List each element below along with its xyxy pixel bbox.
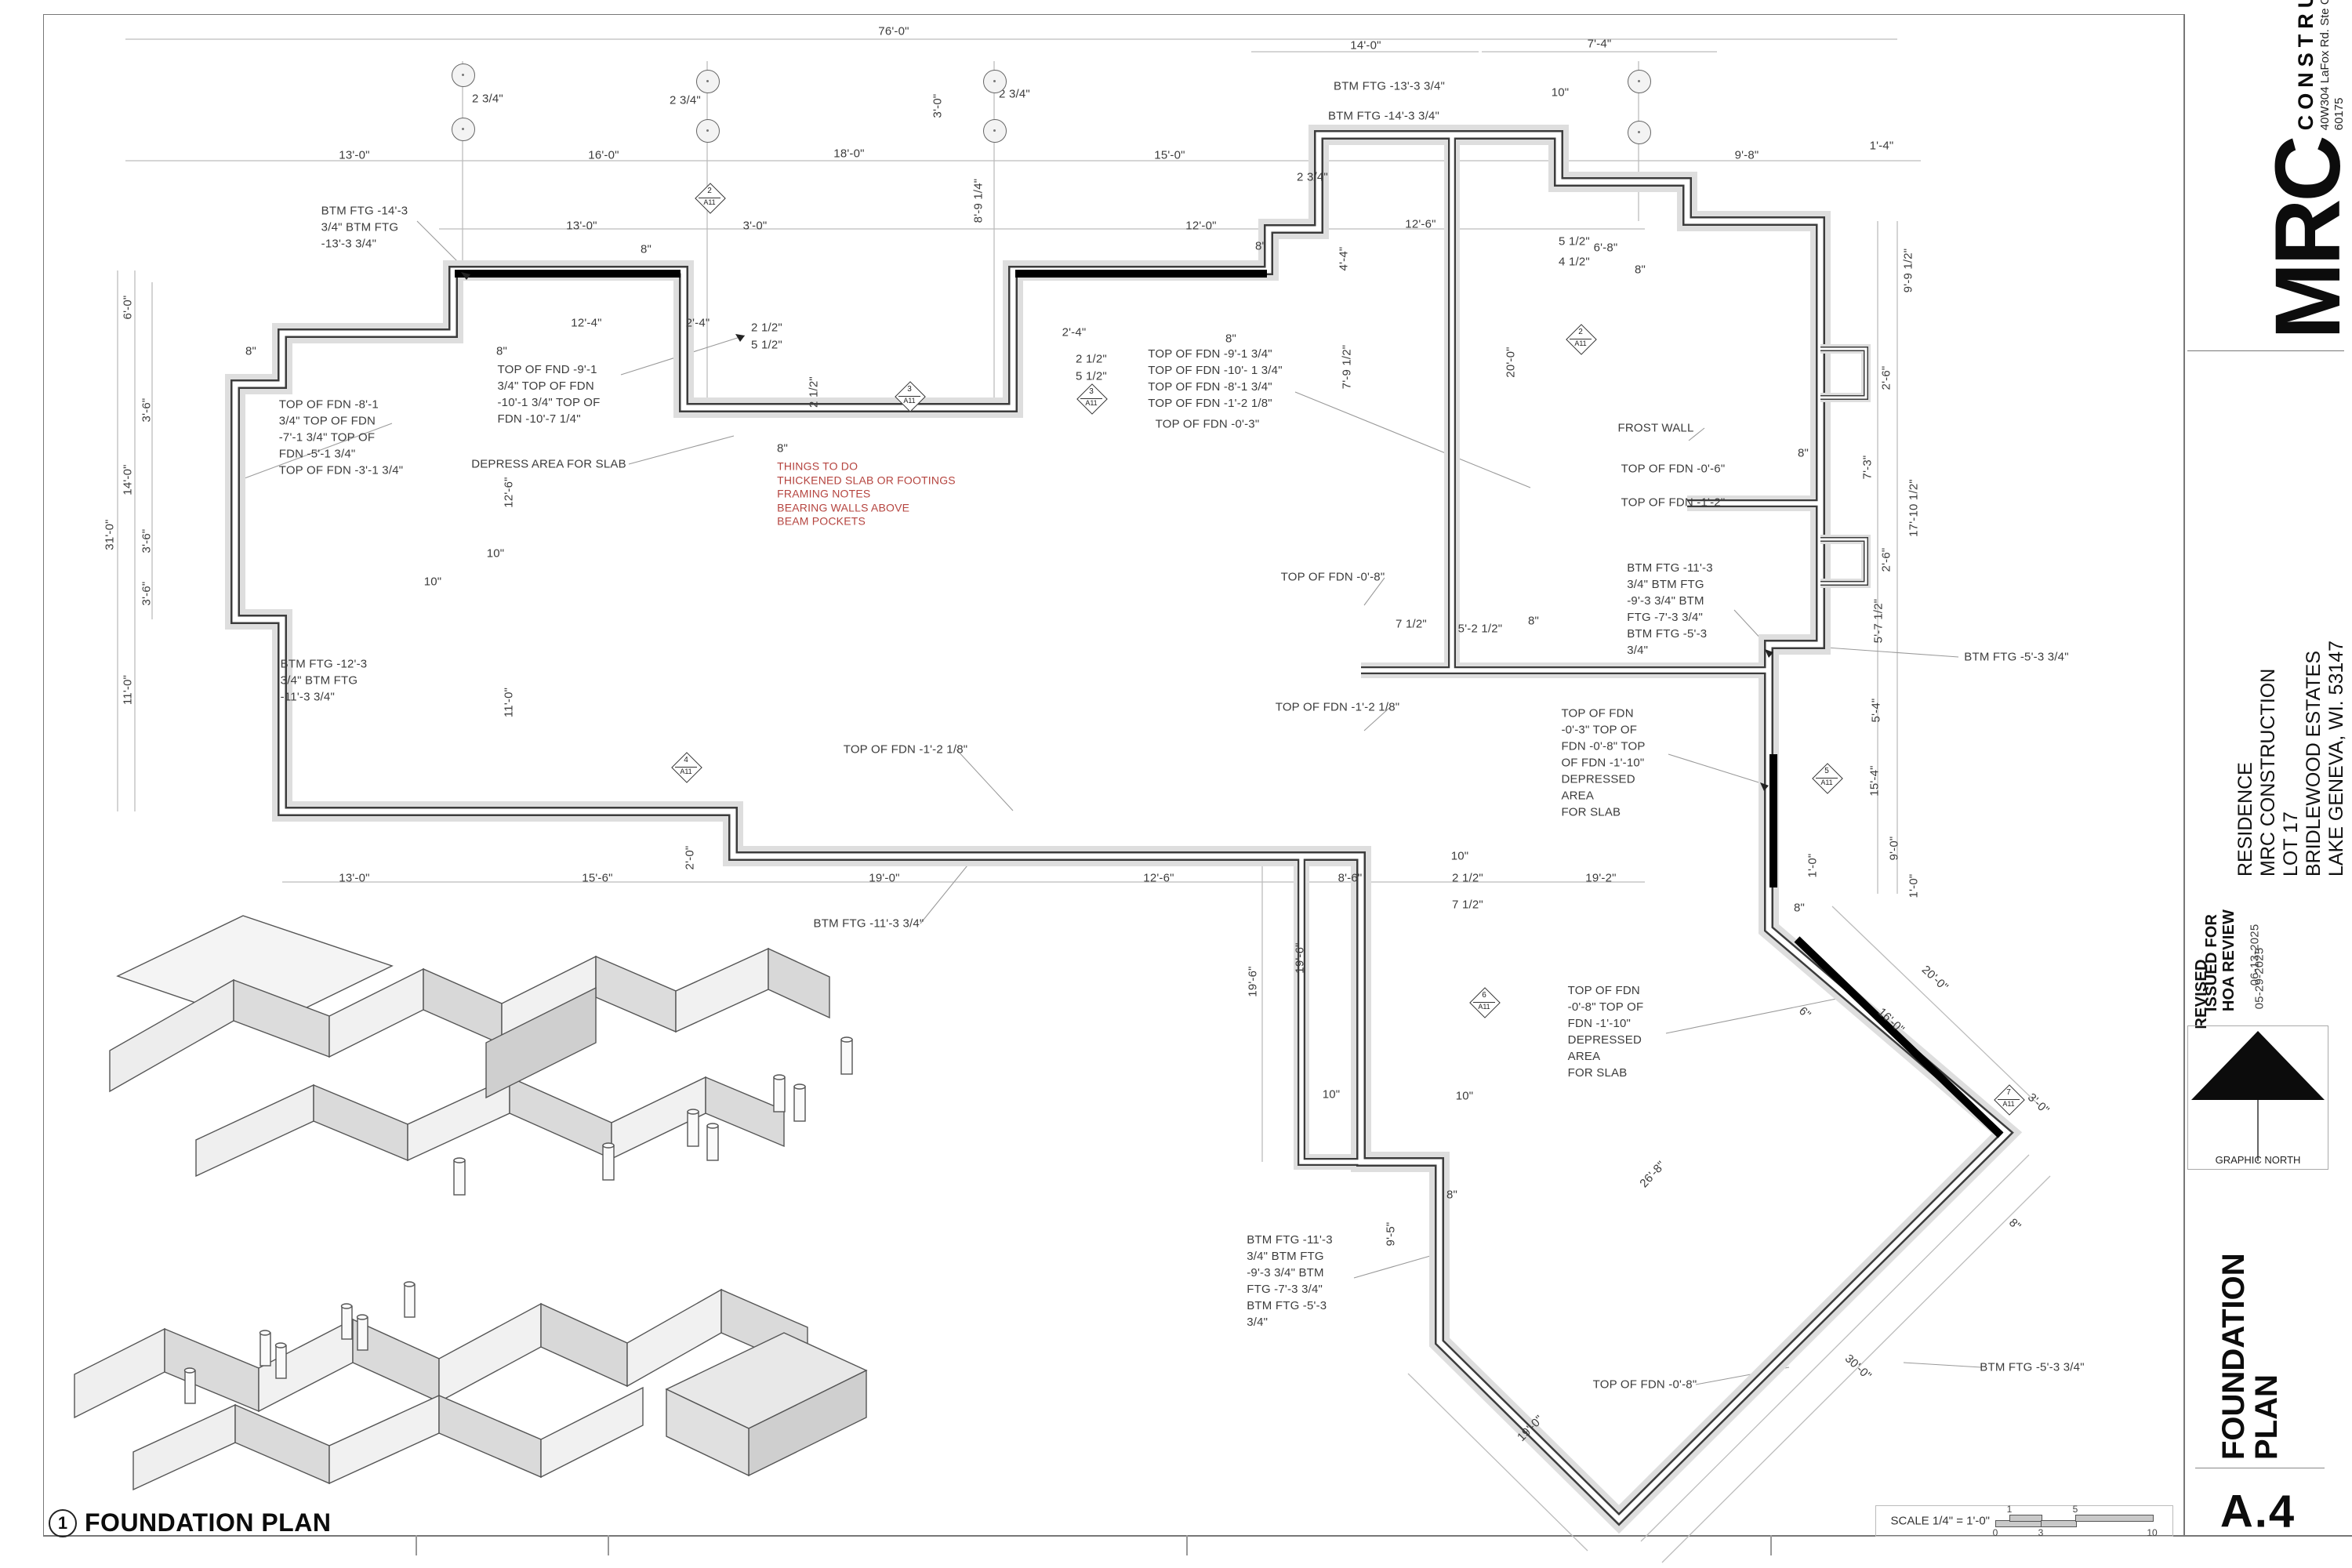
dim-label: BTM FTG -5'-3 3/4": [1964, 649, 2068, 666]
dim-label: 15'-4": [1867, 765, 1883, 796]
dim-label: 76'-0": [878, 24, 909, 40]
dim-label: TOP OF FDN -1'-2 1/8": [844, 742, 968, 758]
dim-label: 1'-0": [1906, 874, 1922, 898]
dim-label: 18'-0": [833, 146, 864, 162]
dim-label: 13'-0": [339, 870, 369, 887]
section-marker-sheet: A11: [1473, 1002, 1495, 1011]
scalebar-segment: [2009, 1515, 2042, 1522]
drawing-sheet: 76'-0"14'-0"7'-4"BTM FTG -13'-3 3/4"BTM …: [0, 0, 2352, 1568]
north-arrow-icon: [2188, 1026, 2328, 1169]
dim-label: TOP OF FND -9'-1 3/4" TOP OF FDN -10'-1 …: [497, 361, 600, 427]
title-divider: [2195, 1468, 2325, 1468]
dim-label: 4 1/2": [1559, 254, 1590, 270]
dim-label: 16'-0": [588, 147, 619, 164]
dim-label: 7'-9 1/2": [1339, 345, 1356, 390]
dim-label: DEPRESS AREA FOR SLAB: [471, 456, 626, 473]
dim-label: 3'-0": [2024, 1090, 2053, 1118]
dim-label: TOP OF FDN -8'-1 3/4" TOP OF FDN -7'-1 3…: [279, 397, 404, 479]
dim-label: 19'-6": [1245, 966, 1261, 996]
dim-label: 8": [641, 241, 652, 258]
section-marker-sheet: A11: [1816, 778, 1838, 786]
project-line: LAKE GENEVA, WI. 53147: [2325, 516, 2348, 877]
annotation-layer: 76'-0"14'-0"7'-4"BTM FTG -13'-3 3/4"BTM …: [0, 0, 2352, 1568]
dim-label: 6'-8": [1594, 240, 1618, 256]
section-marker-sheet: A11: [1080, 398, 1102, 407]
dim-label: 8'-6": [1338, 870, 1363, 887]
project-line: BRIDLEWOOD ESTATES: [2303, 516, 2325, 877]
dim-label: 2'-6": [1878, 548, 1895, 572]
dim-label: BTM FTG -14'-3 3/4": [1328, 108, 1439, 125]
dim-label: 10": [424, 574, 442, 590]
dim-label: TOP OF FDN -0'-8": [1593, 1377, 1697, 1393]
dim-label: 9'-9 1/2": [1900, 249, 1917, 293]
dim-label: 1'-4": [1870, 138, 1894, 154]
logo-subtitle: CONSTRUCTION: [2295, 0, 2318, 130]
section-marker-sheet: A11: [699, 198, 720, 206]
dim-label: 10": [1552, 85, 1570, 101]
dim-label: 2 3/4": [1297, 169, 1328, 186]
dim-label: 8": [1528, 613, 1539, 630]
dim-label: 12'-6": [1143, 870, 1174, 887]
dim-label: 10": [1456, 1088, 1474, 1105]
dim-label: 2'-4": [1062, 325, 1087, 341]
dim-label: 2 3/4": [472, 91, 503, 107]
sheet-title: FOUNDATION PLAN: [2217, 1225, 2296, 1460]
dim-label: 8": [1798, 445, 1809, 462]
section-marker-number: 2: [1570, 328, 1592, 336]
grid-bubble: [983, 70, 1007, 93]
dim-label: 13'-0": [566, 218, 597, 234]
dim-label: 8": [1225, 331, 1236, 347]
dim-label: 6": [1795, 1004, 1815, 1023]
section-marker-sheet: A11: [1998, 1099, 2020, 1108]
dim-label: 2'-4": [686, 315, 710, 332]
dim-label: 8": [1446, 1187, 1457, 1203]
section-marker-number: 4: [675, 756, 697, 764]
dim-label: 8": [496, 343, 507, 360]
dim-label: 19'-2": [1585, 870, 1616, 887]
section-marker-sheet: A11: [1570, 339, 1592, 347]
dim-label: REVISED: [2193, 959, 2210, 1029]
dim-label: 8": [1794, 900, 1805, 916]
north-label: GRAPHIC NORTH: [2188, 1154, 2328, 1166]
dim-label: BTM FTG -11'-3 3/4" BTM FTG -9'-3 3/4" B…: [1247, 1232, 1333, 1330]
dim-label: 9'-0": [1886, 837, 1903, 861]
dim-label: 12'-0": [1185, 218, 1216, 234]
dim-label: 12'-6": [501, 477, 517, 507]
grid-bubble: [983, 119, 1007, 143]
dim-label: 20'-0": [1503, 347, 1519, 377]
scalebar-segment: [2041, 1520, 2077, 1527]
dim-label: TOP OF FDN -0'-3" TOP OF FDN -0'-8" TOP …: [1561, 706, 1645, 821]
dim-label: 2 1/2": [1076, 351, 1107, 368]
dim-label: 8'-9 1/4": [971, 179, 987, 223]
red-note: THINGS TO DO THICKENED SLAB OR FOOTINGS …: [777, 459, 956, 528]
dim-label: 1'-0": [1805, 854, 1821, 878]
dim-label: 7'-4": [1588, 36, 1612, 53]
dim-label: 15'-6": [582, 870, 612, 887]
dim-label: 19'-0": [1514, 1412, 1548, 1446]
dim-label: 8": [1635, 262, 1646, 278]
dim-label: TOP OF FDN -0'-8": [1281, 569, 1385, 586]
logo-text: MRC: [2270, 138, 2347, 339]
dim-label: 5'-2 1/2": [1458, 621, 1503, 637]
section-marker-number: 5: [1816, 767, 1838, 775]
dim-label: 14'-0": [120, 464, 136, 495]
detail-number-bubble: 1: [49, 1509, 77, 1537]
section-marker-number: 7: [1998, 1088, 2020, 1097]
section-marker-sheet: A11: [898, 396, 920, 405]
grid-bubble: [696, 70, 720, 93]
dim-label: TOP OF FDN -0'-8" TOP OF FDN -1'-10" DEP…: [1568, 982, 1644, 1081]
dim-label: 26'-8": [1636, 1157, 1669, 1191]
dim-label: 17'-10 1/2": [1906, 479, 1922, 537]
sheet: { "title_block": { "logo_text": "MRC", "…: [0, 0, 2352, 1568]
grid-bubble: [696, 119, 720, 143]
project-line: LOT 17: [2280, 516, 2303, 877]
detail-title: FOUNDATION PLAN: [85, 1508, 331, 1537]
dim-label: FROST WALL: [1617, 420, 1693, 437]
dim-label: 19'-0": [869, 870, 899, 887]
dim-label: 11'-0": [501, 688, 517, 717]
dim-label: 5 1/2": [1076, 368, 1107, 385]
dim-label: 2 3/4": [670, 93, 701, 109]
dim-label: 8": [245, 343, 256, 360]
dim-label: 19'-6": [1292, 942, 1308, 973]
grid-bubble: [452, 118, 475, 141]
dim-label: 3'-6": [139, 529, 155, 554]
dim-label: 05-29-2025: [2252, 948, 2268, 1010]
dim-label: BTM FTG -14'-3 3/4" BTM FTG -13'-3 3/4": [321, 203, 408, 252]
dim-label: 4'-4": [1336, 247, 1352, 271]
grid-bubble: [1628, 121, 1651, 144]
dim-label: 3'-0": [930, 94, 946, 118]
dim-label: BTM FTG -12'-3 3/4" BTM FTG -11'-3 3/4": [281, 656, 368, 706]
dim-label: TOP OF FDN -1'-2": [1621, 495, 1726, 511]
dim-label: 13'-0": [339, 147, 369, 164]
dim-label: 10": [1323, 1087, 1341, 1103]
dim-label: 7 1/2": [1452, 897, 1483, 913]
project-line: MRC CONSTRUCTION: [2257, 516, 2280, 877]
dim-label: BTM FTG -5'-3 3/4": [1980, 1359, 2084, 1376]
dim-label: 9'-8": [1735, 147, 1759, 164]
dim-label: 5 1/2": [1559, 234, 1590, 250]
dim-label: 14'-0": [1350, 38, 1381, 54]
section-marker-number: 3: [898, 385, 920, 394]
dim-label: 8": [2005, 1215, 2025, 1235]
project-line: RESIDENCE: [2234, 516, 2257, 877]
section-marker-number: 2: [699, 187, 720, 195]
dim-label: 2 1/2": [751, 320, 782, 336]
dim-label: 2 1/2": [806, 376, 822, 408]
section-marker-number: 3: [1080, 387, 1102, 396]
dim-label: 8": [777, 441, 788, 457]
dim-label: 30'-0": [1841, 1351, 1875, 1384]
dim-label: 6'-0": [120, 296, 136, 320]
dim-label: TOP OF FDN -0'-3": [1156, 416, 1260, 433]
company-logo: MRC CONSTRUCTION 40W304 LaFox Rd. Ste C …: [2229, 18, 2347, 339]
project-info: RESIDENCE MRC CONSTRUCTION LOT 17 BRIDLE…: [2234, 516, 2352, 877]
dim-label: 20'-0": [1918, 962, 1951, 995]
dim-label: 2'-6": [1878, 366, 1895, 390]
dim-label: 3'-0": [743, 218, 768, 234]
scalebar-segment: [2075, 1515, 2154, 1522]
dim-label: 16'-0": [1874, 1004, 1907, 1037]
dim-label: 12'-6": [1405, 216, 1436, 233]
dim-label: 15'-0": [1154, 147, 1185, 164]
dim-label: TOP OF FDN -1'-2 1/8": [1276, 699, 1400, 716]
section-marker-number: 6: [1473, 991, 1495, 1000]
dim-label: 5'-4": [1868, 699, 1885, 723]
section-marker-sheet: A11: [675, 767, 697, 775]
dim-label: 11'-0": [120, 675, 136, 705]
dim-label: 9'-5": [1383, 1222, 1399, 1247]
dim-label: TOP OF FDN -9'-1 3/4" TOP OF FDN -10'- 1…: [1148, 346, 1282, 412]
dim-label: 3'-6": [139, 398, 155, 423]
dim-label: 5'-7 1/2": [1871, 599, 1887, 644]
dim-label: 10": [487, 546, 505, 562]
dim-label: 12'-4": [571, 315, 601, 332]
dim-label: 2'-0": [682, 846, 699, 870]
dim-label: 5 1/2": [751, 337, 782, 354]
dim-label: 3'-6": [139, 582, 155, 606]
company-address: 40W304 LaFox Rd. Ste C St. Charles, IL 6…: [2318, 0, 2347, 130]
dim-label: 31'-0": [102, 519, 118, 550]
dim-label: BTM FTG -11'-3 3/4" BTM FTG -9'-3 3/4" B…: [1627, 560, 1713, 659]
dim-label: BTM FTG -11'-3 3/4": [814, 916, 924, 932]
dim-label: 7 1/2": [1396, 616, 1427, 633]
sheet-number: A.4: [2220, 1486, 2296, 1538]
grid-bubble: [1628, 70, 1651, 93]
north-arrow-box: GRAPHIC NORTH: [2187, 1025, 2328, 1170]
dim-label: 7'-3": [1860, 456, 1876, 480]
dim-label: 8": [1255, 238, 1266, 255]
dim-label: TOP OF FDN -0'-6": [1621, 461, 1726, 477]
dim-label: BTM FTG -13'-3 3/4": [1334, 78, 1445, 95]
dim-label: 2 1/2": [1452, 870, 1483, 887]
dim-label: 10": [1451, 848, 1469, 865]
grid-bubble: [452, 64, 475, 87]
